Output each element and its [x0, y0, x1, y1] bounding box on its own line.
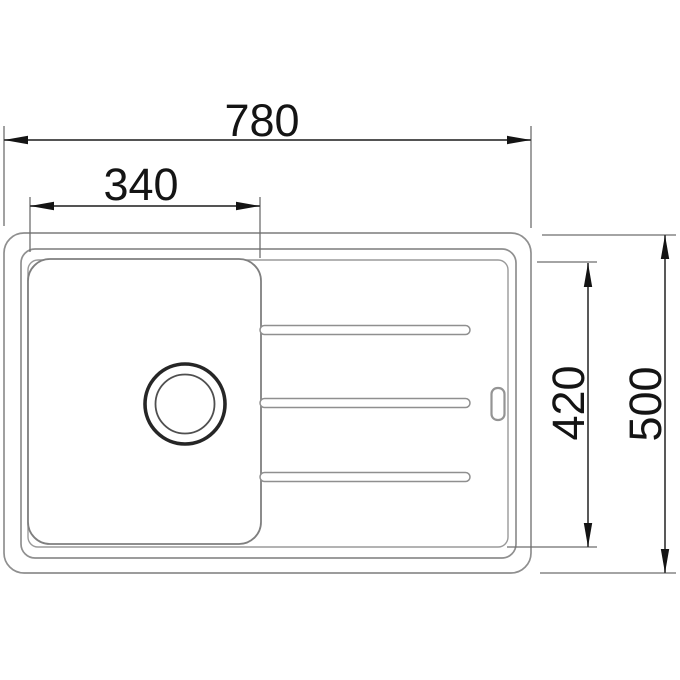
- arrow-left-icon: [30, 202, 54, 210]
- dimension-label-420: 420: [543, 365, 594, 440]
- technical-drawing-canvas: 780 340 420 500: [0, 0, 680, 680]
- drainer-groove: [260, 399, 470, 408]
- drainer-groove: [260, 326, 470, 335]
- dimension-label-500: 500: [620, 366, 671, 441]
- dimension-bowl-width: 340: [30, 159, 260, 258]
- arrow-down-icon: [584, 523, 592, 547]
- arrow-right-icon: [236, 202, 260, 210]
- dimension-inner-depth: 420: [507, 262, 597, 547]
- dimension-label-780: 780: [224, 95, 299, 146]
- overflow-slot: [492, 388, 505, 420]
- drainer-grooves: [260, 326, 470, 482]
- sink-dimension-diagram: 780 340 420 500: [0, 0, 680, 680]
- drainer-groove: [260, 473, 470, 482]
- arrow-left-icon: [4, 136, 28, 144]
- arrow-right-icon: [507, 136, 531, 144]
- arrow-up-icon: [661, 235, 669, 259]
- arrow-up-icon: [584, 263, 592, 287]
- arrow-down-icon: [661, 549, 669, 573]
- dimension-overall-width: 780: [4, 95, 531, 228]
- dimension-label-340: 340: [103, 159, 178, 210]
